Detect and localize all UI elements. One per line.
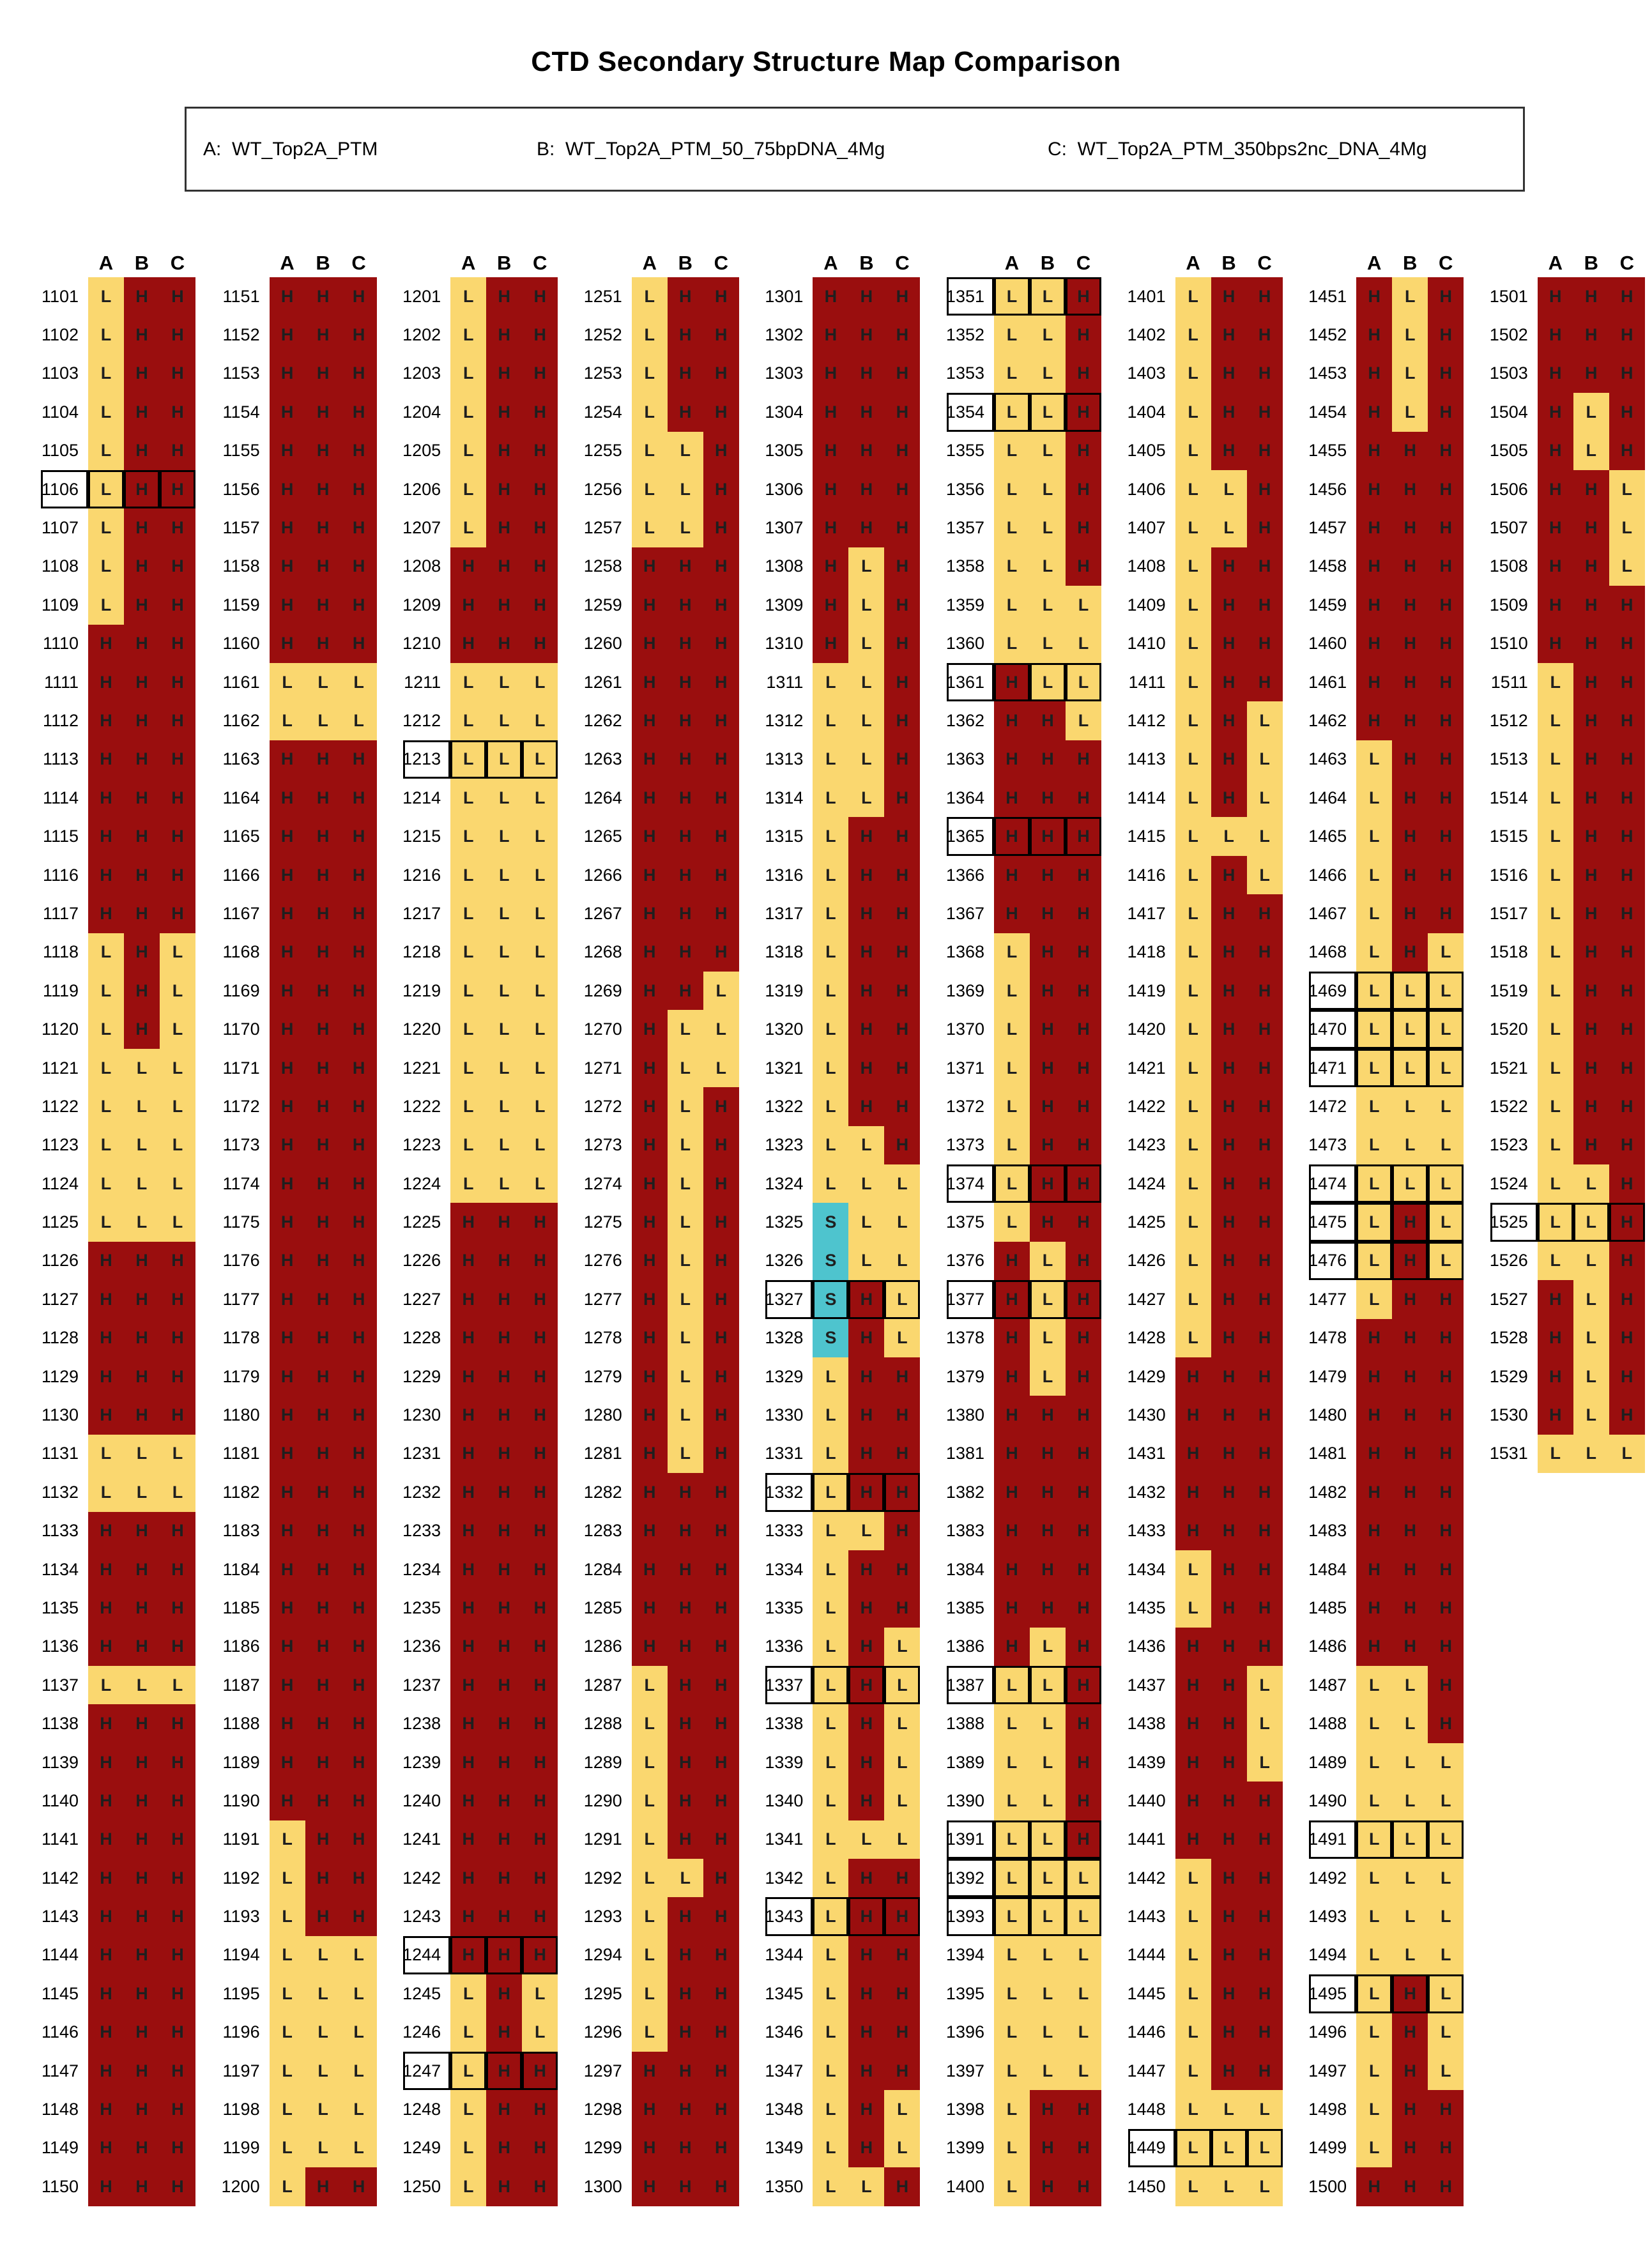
residue-row-1131: 1131LLL <box>41 1435 197 1473</box>
structure-cell-1110-b: H <box>124 625 160 663</box>
residue-row-1374: 1374LHH <box>947 1164 1103 1203</box>
residue-label: 1456 <box>1309 470 1356 508</box>
residue-row-1177: 1177HHH <box>222 1280 378 1318</box>
residue-row-1429: 1429HHH <box>1128 1357 1284 1396</box>
structure-cell-1171-a: H <box>270 1049 305 1087</box>
structure-cell-1411-a: L <box>1175 663 1211 701</box>
residue-row-1227: 1227HHH <box>403 1280 559 1318</box>
structure-cell-1327-b: H <box>848 1280 884 1318</box>
structure-cell-1520-c: H <box>1609 1010 1645 1048</box>
structure-cell-1491-a: L <box>1356 1820 1392 1859</box>
structure-cell-1126-c: H <box>160 1242 195 1280</box>
residue-label: 1331 <box>765 1435 813 1473</box>
residue-row-1266: 1266HHH <box>585 856 740 894</box>
structure-cell-1297-b: H <box>668 2052 703 2090</box>
structure-cell-1328-b: H <box>848 1319 884 1357</box>
residue-label: 1168 <box>222 933 270 972</box>
structure-cell-1279-a: H <box>632 1357 668 1396</box>
residue-row-1295: 1295LHH <box>585 1974 740 2013</box>
structure-cell-1293-c: H <box>703 1897 739 1935</box>
residue-label: 1360 <box>947 625 994 663</box>
structure-cell-1169-b: H <box>305 972 341 1010</box>
structure-cell-1362-b: H <box>1030 701 1066 740</box>
structure-cell-1225-a: H <box>450 1203 486 1241</box>
column-header: ABC <box>1538 244 1646 277</box>
residue-row-1221: 1221LLL <box>403 1049 559 1087</box>
structure-cell-1230-a: H <box>450 1396 486 1434</box>
structure-cell-1172-b: H <box>305 1087 341 1125</box>
structure-cell-1387-b: L <box>1030 1666 1066 1704</box>
structure-cell-1317-c: H <box>884 894 920 933</box>
structure-cell-1426-b: H <box>1211 1242 1247 1280</box>
structure-cell-1103-a: L <box>88 355 124 393</box>
residue-label: 1302 <box>765 316 813 354</box>
structure-cell-1101-b: H <box>124 277 160 316</box>
structure-cell-1471-b: L <box>1392 1049 1428 1087</box>
structure-cell-1326-a: S <box>813 1242 848 1280</box>
structure-cell-1240-c: H <box>522 1782 558 1820</box>
residue-row-1199: 1199LLL <box>222 2129 378 2167</box>
residue-row-1253: 1253LHH <box>585 355 740 393</box>
residue-label: 1453 <box>1309 355 1356 393</box>
residue-label: 1495 <box>1309 1974 1356 2013</box>
structure-cell-1285-a: H <box>632 1589 668 1627</box>
legend-box: A: WT_Top2A_PTM B: WT_Top2A_PTM_50_75bpD… <box>185 107 1525 192</box>
structure-cell-1184-c: H <box>341 1550 377 1589</box>
structure-cell-1284-a: H <box>632 1550 668 1589</box>
residue-row-1521: 1521LHH <box>1490 1049 1646 1087</box>
structure-cell-1160-a: H <box>270 625 305 663</box>
residue-column-1151: ABC1151HHH1152HHH1153HHH1154HHH1155HHH11… <box>222 244 378 2206</box>
structure-cell-1516-c: H <box>1609 856 1645 894</box>
structure-cell-1235-a: H <box>450 1589 486 1627</box>
structure-cell-1305-a: H <box>813 432 848 470</box>
column-header-b: B <box>848 244 884 277</box>
structure-cell-1404-c: H <box>1247 393 1283 431</box>
structure-cell-1160-c: H <box>341 625 377 663</box>
residue-row-1498: 1498LHH <box>1309 2090 1465 2128</box>
structure-cell-1320-b: H <box>848 1010 884 1048</box>
residue-label: 1511 <box>1490 663 1538 701</box>
structure-cell-1338-c: L <box>884 1704 920 1743</box>
residue-row-1344: 1344LHH <box>765 1936 921 1974</box>
structure-cell-1492-b: L <box>1392 1859 1428 1897</box>
structure-cell-1283-b: H <box>668 1512 703 1550</box>
residue-row-1280: 1280HLH <box>585 1396 740 1434</box>
structure-cell-1374-b: H <box>1030 1164 1066 1203</box>
structure-cell-1369-c: H <box>1066 972 1101 1010</box>
structure-cell-1424-a: L <box>1175 1164 1211 1203</box>
structure-cell-1397-b: L <box>1030 2052 1066 2090</box>
residue-label: 1265 <box>585 817 632 855</box>
structure-cell-1509-b: H <box>1573 586 1609 624</box>
structure-cell-1179-b: H <box>305 1357 341 1396</box>
structure-cell-1226-c: H <box>522 1242 558 1280</box>
residue-label: 1458 <box>1309 547 1356 586</box>
structure-cell-1316-b: H <box>848 856 884 894</box>
residue-label: 1449 <box>1128 2129 1175 2167</box>
structure-cell-1324-a: L <box>813 1164 848 1203</box>
structure-cell-1224-b: L <box>486 1164 522 1203</box>
residue-label: 1154 <box>222 393 270 431</box>
column-header: ABC <box>450 244 559 277</box>
column-header-b: B <box>1392 244 1428 277</box>
residue-label: 1224 <box>403 1164 450 1203</box>
structure-cell-1298-a: H <box>632 2090 668 2128</box>
residue-row-1312: 1312LLH <box>765 701 921 740</box>
residue-label: 1139 <box>41 1743 88 1782</box>
residue-label: 1396 <box>947 2013 994 2052</box>
structure-cell-1333-c: H <box>884 1512 920 1550</box>
residue-row-1398: 1398LHH <box>947 2090 1103 2128</box>
structure-cell-1267-a: H <box>632 894 668 933</box>
residue-row-1400: 1400LHH <box>947 2167 1103 2206</box>
structure-cell-1158-c: H <box>341 547 377 586</box>
residue-row-1255: 1255LLH <box>585 432 740 470</box>
residue-label: 1445 <box>1128 1974 1175 2013</box>
structure-cell-1225-c: H <box>522 1203 558 1241</box>
structure-cell-1256-c: H <box>703 470 739 508</box>
structure-cell-1263-b: H <box>668 740 703 779</box>
structure-cell-1195-b: L <box>305 1974 341 2013</box>
structure-cell-1238-a: H <box>450 1704 486 1743</box>
structure-cell-1460-b: H <box>1392 625 1428 663</box>
column-header-c: C <box>1247 244 1283 277</box>
residue-label: 1454 <box>1309 393 1356 431</box>
structure-cell-1129-c: H <box>160 1357 195 1396</box>
structure-cell-1356-b: L <box>1030 470 1066 508</box>
structure-cell-1343-c: H <box>884 1897 920 1935</box>
residue-row-1141: 1141HHH <box>41 1820 197 1859</box>
residue-label: 1390 <box>947 1782 994 1820</box>
residue-row-1514: 1514LHH <box>1490 779 1646 817</box>
structure-cell-1101-a: L <box>88 277 124 316</box>
structure-cell-1433-c: H <box>1247 1512 1283 1550</box>
structure-cell-1287-b: H <box>668 1666 703 1704</box>
structure-cell-1392-a: L <box>994 1859 1030 1897</box>
structure-cell-1271-b: L <box>668 1049 703 1087</box>
residue-row-1389: 1389LLH <box>947 1743 1103 1782</box>
residue-label: 1111 <box>41 663 88 701</box>
residue-row-1372: 1372LHH <box>947 1087 1103 1125</box>
structure-cell-1492-c: L <box>1428 1859 1464 1897</box>
structure-cell-1118-a: L <box>88 933 124 972</box>
structure-cell-1244-c: H <box>522 1936 558 1974</box>
residue-label: 1204 <box>403 393 450 431</box>
structure-cell-1403-b: H <box>1211 355 1247 393</box>
residue-label: 1319 <box>765 972 813 1010</box>
structure-cell-1427-b: H <box>1211 1280 1247 1318</box>
structure-cell-1421-a: L <box>1175 1049 1211 1087</box>
structure-cell-1230-c: H <box>522 1396 558 1434</box>
structure-cell-1430-b: H <box>1211 1396 1247 1434</box>
residue-row-1112: 1112HHH <box>41 701 197 740</box>
structure-cell-1426-c: H <box>1247 1242 1283 1280</box>
structure-cell-1327-a: S <box>813 1280 848 1318</box>
residue-label: 1247 <box>403 2052 450 2090</box>
structure-cell-1448-a: L <box>1175 2090 1211 2128</box>
residue-row-1279: 1279HLH <box>585 1357 740 1396</box>
structure-cell-1279-c: H <box>703 1357 739 1396</box>
structure-cell-1523-a: L <box>1538 1126 1573 1164</box>
structure-cell-1190-c: H <box>341 1782 377 1820</box>
structure-cell-1168-c: H <box>341 933 377 972</box>
structure-cell-1454-c: H <box>1428 393 1464 431</box>
structure-cell-1397-a: L <box>994 2052 1030 2090</box>
structure-cell-1506-a: H <box>1538 470 1573 508</box>
structure-cell-1526-a: L <box>1538 1242 1573 1280</box>
structure-cell-1116-a: H <box>88 856 124 894</box>
residue-row-1236: 1236HHH <box>403 1628 559 1666</box>
residue-row-1373: 1373LHH <box>947 1126 1103 1164</box>
residue-label: 1329 <box>765 1357 813 1396</box>
structure-cell-1116-c: H <box>160 856 195 894</box>
residue-row-1191: 1191LHH <box>222 1820 378 1859</box>
structure-cell-1397-c: L <box>1066 2052 1101 2090</box>
structure-cell-1413-c: L <box>1247 740 1283 779</box>
structure-cell-1322-c: H <box>884 1087 920 1125</box>
residue-row-1447: 1447LHH <box>1128 2052 1284 2090</box>
structure-cell-1399-a: L <box>994 2129 1030 2167</box>
structure-cell-1122-b: L <box>124 1087 160 1125</box>
structure-cell-1311-b: L <box>848 663 884 701</box>
structure-cell-1483-c: H <box>1428 1512 1464 1550</box>
structure-cell-1380-c: H <box>1066 1396 1101 1434</box>
structure-cell-1411-b: H <box>1211 663 1247 701</box>
residue-label: 1214 <box>403 779 450 817</box>
structure-cell-1377-b: L <box>1030 1280 1066 1318</box>
structure-cell-1327-c: L <box>884 1280 920 1318</box>
structure-cell-1294-b: H <box>668 1936 703 1974</box>
structure-cell-1244-a: H <box>450 1936 486 1974</box>
structure-cell-1315-a: L <box>813 817 848 855</box>
structure-cell-1152-c: H <box>341 316 377 354</box>
structure-cell-1229-b: H <box>486 1357 522 1396</box>
structure-cell-1180-c: H <box>341 1396 377 1434</box>
column-header: ABC <box>1175 244 1284 277</box>
structure-cell-1307-c: H <box>884 508 920 547</box>
structure-cell-1417-a: L <box>1175 894 1211 933</box>
residue-label: 1257 <box>585 508 632 547</box>
residue-label: 1114 <box>41 779 88 817</box>
structure-cell-1524-b: L <box>1573 1164 1609 1203</box>
structure-cell-1260-a: H <box>632 625 668 663</box>
structure-cell-1296-a: L <box>632 2013 668 2052</box>
structure-cell-1482-a: H <box>1356 1473 1392 1511</box>
residue-row-1317: 1317LHH <box>765 894 921 933</box>
structure-cell-1302-a: H <box>813 316 848 354</box>
residue-label: 1264 <box>585 779 632 817</box>
structure-cell-1261-a: H <box>632 663 668 701</box>
residue-label: 1282 <box>585 1473 632 1511</box>
structure-cell-1172-c: H <box>341 1087 377 1125</box>
structure-cell-1134-c: H <box>160 1550 195 1589</box>
structure-cell-1319-b: H <box>848 972 884 1010</box>
residue-label: 1293 <box>585 1897 632 1935</box>
residue-label: 1367 <box>947 894 994 933</box>
structure-cell-1193-b: H <box>305 1897 341 1935</box>
residue-row-1164: 1164HHH <box>222 779 378 817</box>
structure-cell-1513-c: H <box>1609 740 1645 779</box>
structure-cell-1202-b: H <box>486 316 522 354</box>
structure-cell-1111-a: H <box>88 663 124 701</box>
structure-cell-1389-b: L <box>1030 1743 1066 1782</box>
residue-label: 1512 <box>1490 701 1538 740</box>
structure-cell-1405-b: H <box>1211 432 1247 470</box>
structure-cell-1501-c: H <box>1609 277 1645 316</box>
residue-row-1353: 1353LLH <box>947 355 1103 393</box>
structure-cell-1435-b: H <box>1211 1589 1247 1627</box>
structure-cell-1241-a: H <box>450 1820 486 1859</box>
structure-cell-1456-b: H <box>1392 470 1428 508</box>
residue-row-1473: 1473LLL <box>1309 1126 1465 1164</box>
residue-row-1249: 1249LHH <box>403 2129 559 2167</box>
residue-row-1469: 1469LLL <box>1309 972 1465 1010</box>
structure-cell-1311-c: H <box>884 663 920 701</box>
structure-cell-1295-a: L <box>632 1974 668 2013</box>
structure-cell-1125-a: L <box>88 1203 124 1241</box>
structure-cell-1271-c: L <box>703 1049 739 1087</box>
residue-label: 1448 <box>1128 2090 1175 2128</box>
residue-label: 1477 <box>1309 1280 1356 1318</box>
structure-cell-1280-c: H <box>703 1396 739 1434</box>
residue-row-1442: 1442LHH <box>1128 1859 1284 1897</box>
residue-row-1237: 1237HHH <box>403 1666 559 1704</box>
structure-cell-1434-c: H <box>1247 1550 1283 1589</box>
structure-cell-1147-b: H <box>124 2052 160 2090</box>
structure-cell-1113-c: H <box>160 740 195 779</box>
structure-cell-1185-a: H <box>270 1589 305 1627</box>
residue-label: 1341 <box>765 1820 813 1859</box>
residue-label: 1394 <box>947 1936 994 1974</box>
structure-cell-1227-b: H <box>486 1280 522 1318</box>
residue-row-1409: 1409LHH <box>1128 586 1284 624</box>
structure-cell-1261-b: H <box>668 663 703 701</box>
structure-cell-1382-c: H <box>1066 1473 1101 1511</box>
structure-cell-1237-c: H <box>522 1666 558 1704</box>
structure-cell-1487-c: H <box>1428 1666 1464 1704</box>
structure-cell-1452-b: L <box>1392 316 1428 354</box>
structure-cell-1450-a: L <box>1175 2167 1211 2206</box>
residue-row-1352: 1352LLH <box>947 316 1103 354</box>
structure-cell-1466-b: H <box>1392 856 1428 894</box>
structure-cell-1432-b: H <box>1211 1473 1247 1511</box>
residue-row-1125: 1125LLL <box>41 1203 197 1241</box>
structure-cell-1103-b: H <box>124 355 160 393</box>
structure-cell-1118-c: L <box>160 933 195 972</box>
residue-row-1176: 1176HHH <box>222 1242 378 1280</box>
residue-row-1450: 1450LLL <box>1128 2167 1284 2206</box>
residue-label: 1323 <box>765 1126 813 1164</box>
structure-cell-1117-b: H <box>124 894 160 933</box>
structure-cell-1196-c: L <box>341 2013 377 2052</box>
residue-row-1464: 1464LHH <box>1309 779 1465 817</box>
residue-row-1518: 1518LHH <box>1490 933 1646 972</box>
structure-cell-1119-a: L <box>88 972 124 1010</box>
structure-cell-1461-b: H <box>1392 663 1428 701</box>
structure-cell-1173-a: H <box>270 1126 305 1164</box>
structure-cell-1189-b: H <box>305 1743 341 1782</box>
residue-row-1338: 1338LHL <box>765 1704 921 1743</box>
structure-cell-1470-c: L <box>1428 1010 1464 1048</box>
structure-cell-1361-c: L <box>1066 663 1101 701</box>
residue-row-1117: 1117HHH <box>41 894 197 933</box>
structure-cell-1182-a: H <box>270 1473 305 1511</box>
structure-cell-1336-c: L <box>884 1628 920 1666</box>
structure-cell-1301-b: H <box>848 277 884 316</box>
structure-cell-1238-c: H <box>522 1704 558 1743</box>
residue-row-1284: 1284HHH <box>585 1550 740 1589</box>
residue-row-1166: 1166HHH <box>222 856 378 894</box>
residue-label: 1142 <box>41 1859 88 1897</box>
residue-row-1523: 1523LHH <box>1490 1126 1646 1164</box>
structure-cell-1104-a: L <box>88 393 124 431</box>
structure-cell-1477-b: H <box>1392 1280 1428 1318</box>
structure-cell-1527-c: H <box>1609 1280 1645 1318</box>
structure-cell-1445-b: H <box>1211 1974 1247 2013</box>
residue-row-1397: 1397LLL <box>947 2052 1103 2090</box>
residue-row-1510: 1510HHH <box>1490 625 1646 663</box>
structure-cell-1437-b: H <box>1211 1666 1247 1704</box>
residue-row-1160: 1160HHH <box>222 625 378 663</box>
structure-cell-1113-a: H <box>88 740 124 779</box>
residue-label: 1369 <box>947 972 994 1010</box>
residue-row-1512: 1512LHH <box>1490 701 1646 740</box>
structure-cell-1190-a: H <box>270 1782 305 1820</box>
structure-cell-1188-b: H <box>305 1704 341 1743</box>
residue-row-1363: 1363HHH <box>947 740 1103 779</box>
residue-row-1168: 1168HHH <box>222 933 378 972</box>
structure-cell-1373-a: L <box>994 1126 1030 1164</box>
residue-label: 1296 <box>585 2013 632 2052</box>
structure-cell-1188-a: H <box>270 1704 305 1743</box>
residue-label: 1130 <box>41 1396 88 1434</box>
structure-cell-1164-b: H <box>305 779 341 817</box>
residue-row-1358: 1358LLH <box>947 547 1103 586</box>
residue-label: 1324 <box>765 1164 813 1203</box>
structure-cell-1387-a: L <box>994 1666 1030 1704</box>
structure-cell-1500-c: H <box>1428 2167 1464 2206</box>
residue-row-1478: 1478HHH <box>1309 1319 1465 1357</box>
structure-cell-1455-b: H <box>1392 432 1428 470</box>
structure-cell-1156-a: H <box>270 470 305 508</box>
structure-cell-1141-b: H <box>124 1820 160 1859</box>
structure-cell-1222-c: L <box>522 1087 558 1125</box>
structure-cell-1196-a: L <box>270 2013 305 2052</box>
structure-cell-1191-a: L <box>270 1820 305 1859</box>
structure-cell-1504-b: L <box>1573 393 1609 431</box>
structure-cell-1522-b: H <box>1573 1087 1609 1125</box>
residue-row-1506: 1506HHL <box>1490 470 1646 508</box>
structure-cell-1358-c: H <box>1066 547 1101 586</box>
residue-row-1213: 1213LLL <box>403 740 559 779</box>
residue-row-1403: 1403LHH <box>1128 355 1284 393</box>
residue-row-1293: 1293LHH <box>585 1897 740 1935</box>
residue-row-1470: 1470LLL <box>1309 1010 1465 1048</box>
structure-cell-1246-b: H <box>486 2013 522 2052</box>
residue-label: 1480 <box>1309 1396 1356 1434</box>
residue-row-1313: 1313LLH <box>765 740 921 779</box>
structure-cell-1133-c: H <box>160 1512 195 1550</box>
structure-cell-1247-a: L <box>450 2052 486 2090</box>
structure-cell-1207-a: L <box>450 508 486 547</box>
structure-cell-1413-a: L <box>1175 740 1211 779</box>
residue-label: 1404 <box>1128 393 1175 431</box>
structure-cell-1142-a: H <box>88 1859 124 1897</box>
structure-map: ABC1101LHH1102LHH1103LHH1104LHH1105LHH11… <box>0 244 1652 2224</box>
residue-label: 1443 <box>1128 1897 1175 1935</box>
structure-cell-1391-a: L <box>994 1820 1030 1859</box>
